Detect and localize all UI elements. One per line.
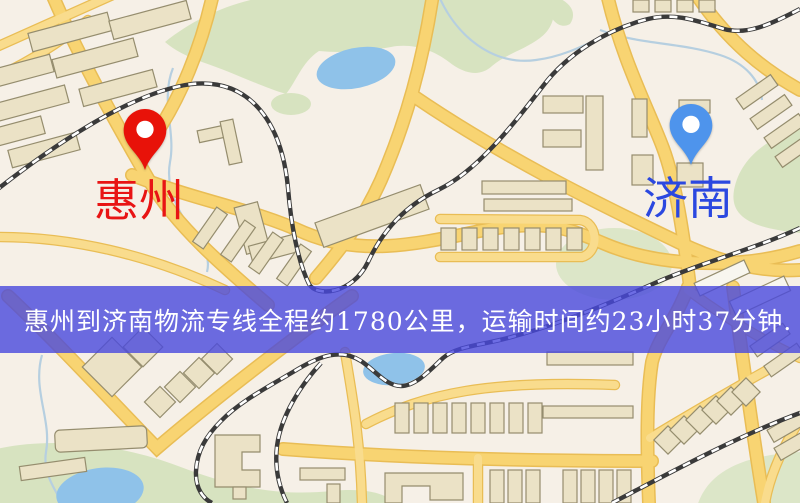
red-location-pin-icon — [122, 108, 168, 171]
route-info-text: 惠州到济南物流专线全程约1780公里，运输时间约23小时37分钟. — [0, 302, 792, 338]
map-screenshot: 惠州 济南 惠州到济南物流专线全程约1780公里，运输时间约23小时37分钟. — [0, 0, 800, 503]
blue-location-pin-icon — [668, 103, 714, 166]
route-info-banner: 惠州到济南物流专线全程约1780公里，运输时间约23小时37分钟. — [0, 286, 800, 353]
destination-pin[interactable] — [668, 103, 714, 166]
origin-pin[interactable] — [122, 108, 168, 171]
map-background — [0, 0, 800, 503]
origin-city-label: 惠州 — [94, 178, 184, 223]
destination-city-label: 济南 — [643, 176, 733, 221]
